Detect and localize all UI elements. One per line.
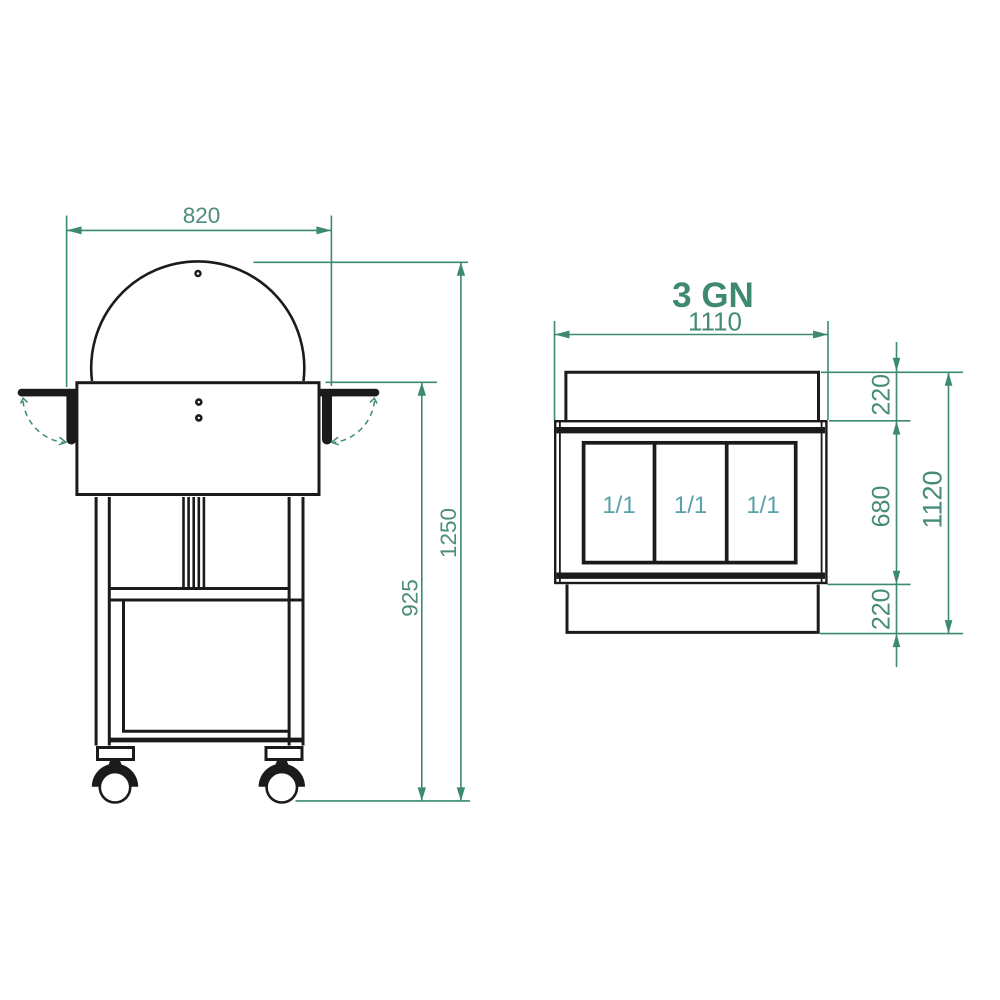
svg-text:1/1: 1/1 (602, 492, 635, 519)
svg-text:220: 220 (868, 374, 896, 416)
svg-text:820: 820 (183, 203, 221, 228)
svg-text:1120: 1120 (918, 470, 948, 528)
svg-text:925: 925 (397, 579, 422, 617)
svg-text:680: 680 (868, 486, 896, 528)
svg-text:1110: 1110 (688, 307, 742, 337)
svg-text:1/1: 1/1 (674, 492, 707, 519)
svg-text:1/1: 1/1 (746, 492, 779, 519)
svg-text:220: 220 (868, 588, 896, 630)
svg-text:1250: 1250 (436, 508, 461, 558)
